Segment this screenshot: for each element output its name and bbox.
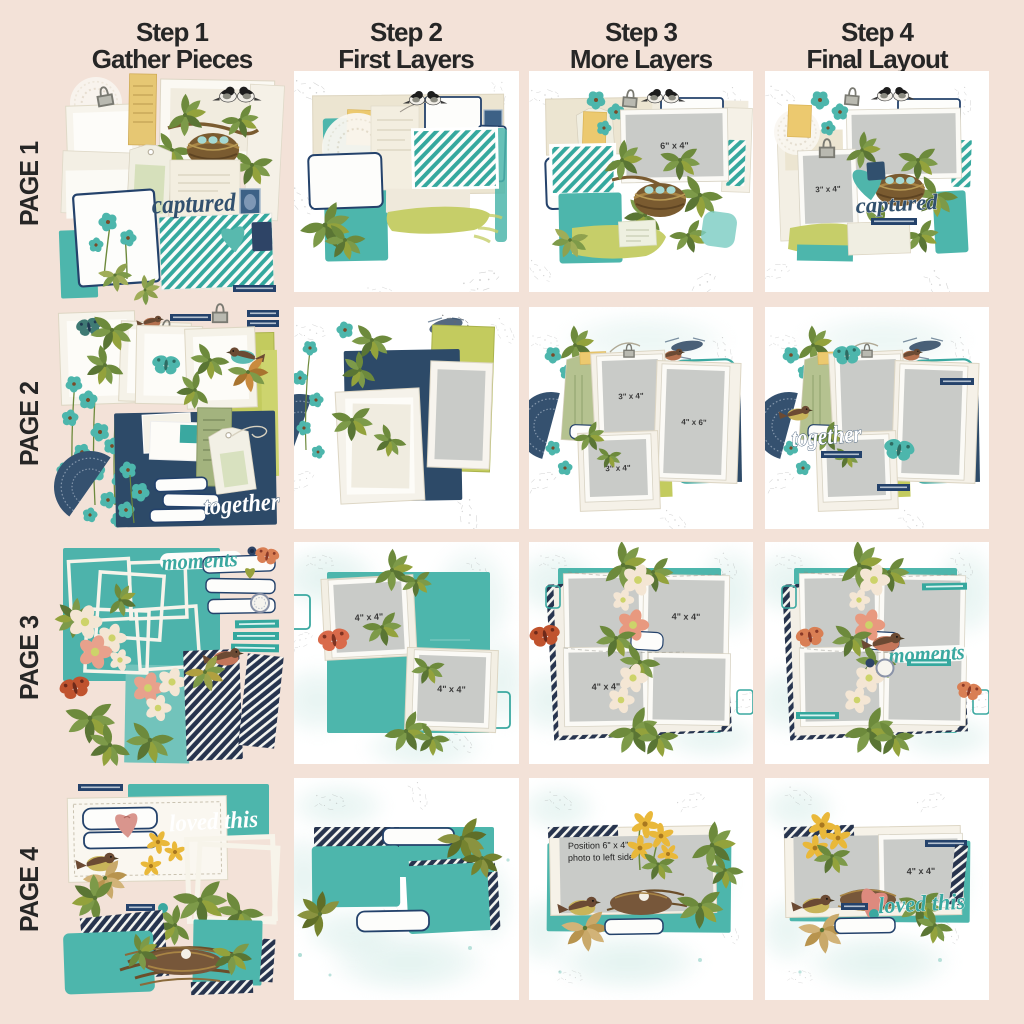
svg-text:together: together xyxy=(203,488,281,520)
svg-text:captured: captured xyxy=(855,189,939,218)
svg-text:4" x 4": 4" x 4" xyxy=(592,681,621,691)
svg-text:captured: captured xyxy=(151,188,237,220)
svg-text:4" x 6": 4" x 6" xyxy=(681,417,707,427)
svg-text:loved this: loved this xyxy=(878,889,966,919)
svg-text:3" x 4": 3" x 4" xyxy=(815,184,841,194)
svg-text:loved this: loved this xyxy=(169,807,259,838)
svg-text:PAGE 4: PAGE 4 xyxy=(14,847,44,932)
svg-text:photo to left side: photo to left side xyxy=(568,852,634,863)
svg-text:Gather Pieces: Gather Pieces xyxy=(92,44,253,74)
svg-text:4" x 4": 4" x 4" xyxy=(907,866,936,876)
svg-text:together: together xyxy=(791,421,863,453)
svg-text:4" x 4": 4" x 4" xyxy=(672,611,701,621)
svg-text:More Layers: More Layers xyxy=(570,44,713,74)
svg-text:4" x 4": 4" x 4" xyxy=(354,611,383,622)
svg-text:First Layers: First Layers xyxy=(338,44,474,74)
svg-text:moments: moments xyxy=(161,546,238,575)
svg-text:3" x 4": 3" x 4" xyxy=(605,463,631,473)
svg-text:Final Layout: Final Layout xyxy=(806,44,948,74)
svg-text:4" x 4": 4" x 4" xyxy=(437,684,466,695)
svg-text:PAGE 3: PAGE 3 xyxy=(14,615,44,700)
svg-text:Step 1: Step 1 xyxy=(136,17,209,47)
svg-text:6" x 4": 6" x 4" xyxy=(660,140,689,150)
svg-text:PAGE 2: PAGE 2 xyxy=(14,381,44,466)
svg-text:Step 3: Step 3 xyxy=(605,17,678,47)
svg-text:Position 6" x 4": Position 6" x 4" xyxy=(568,840,629,851)
svg-text:PAGE 1: PAGE 1 xyxy=(14,141,44,226)
svg-text:Step 2: Step 2 xyxy=(370,17,443,47)
svg-text:Step 4: Step 4 xyxy=(841,17,915,47)
svg-text:3" x 4": 3" x 4" xyxy=(618,391,644,401)
